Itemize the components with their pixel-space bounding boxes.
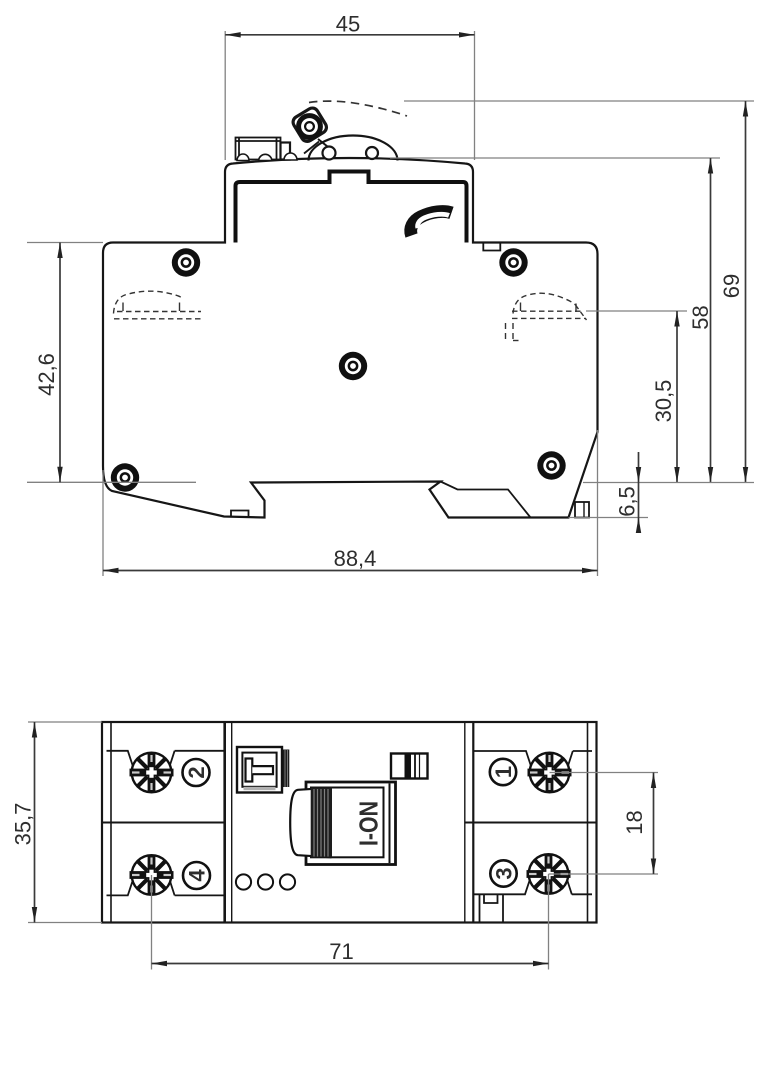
svg-text:42,6: 42,6 [34, 353, 59, 396]
svg-text:30,5: 30,5 [651, 380, 676, 423]
svg-text:45: 45 [336, 12, 360, 37]
svg-text:58: 58 [688, 305, 713, 329]
svg-text:1: 1 [491, 766, 516, 778]
svg-text:2: 2 [184, 766, 209, 778]
svg-text:3: 3 [492, 867, 517, 879]
svg-text:I-ON: I-ON [355, 801, 385, 846]
svg-text:4: 4 [185, 869, 210, 882]
svg-text:69: 69 [719, 274, 744, 298]
svg-text:18: 18 [622, 810, 647, 834]
svg-text:88,4: 88,4 [334, 546, 377, 571]
svg-text:35,7: 35,7 [11, 803, 36, 846]
svg-text:6,5: 6,5 [615, 486, 640, 517]
svg-text:71: 71 [329, 939, 353, 964]
